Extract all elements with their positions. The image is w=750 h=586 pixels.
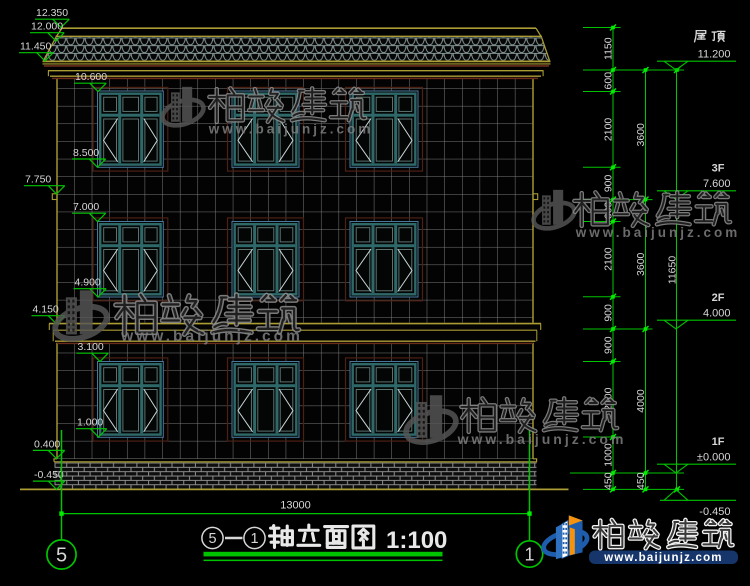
svg-text:-0.450: -0.450 [34,469,64,481]
svg-text:2F: 2F [712,292,725,304]
svg-text:1150: 1150 [603,37,615,60]
svg-text:1.000: 1.000 [77,417,103,429]
svg-text:900: 900 [603,336,615,354]
svg-text:1: 1 [250,531,258,547]
svg-text:450: 450 [635,472,647,490]
svg-text:12.350: 12.350 [36,7,68,19]
svg-text:3F: 3F [712,163,725,175]
svg-text:1F: 1F [712,436,725,448]
svg-text:11.200: 11.200 [698,49,731,61]
svg-text:±0.000: ±0.000 [697,452,731,464]
svg-text:0.400: 0.400 [34,438,60,450]
svg-text:8.500: 8.500 [73,147,99,159]
svg-text:5: 5 [56,545,67,567]
svg-text:1: 1 [524,545,534,565]
svg-text:13000: 13000 [280,500,311,512]
svg-text:www.baijunjz.com: www.baijunjz.com [120,328,303,345]
svg-text:2100: 2100 [603,247,615,271]
svg-text:4.000: 4.000 [703,308,731,320]
svg-text:www.baijunjz.com: www.baijunjz.com [208,122,374,137]
svg-text:11.450: 11.450 [20,41,51,53]
svg-text:7.600: 7.600 [703,178,731,190]
svg-text:4.150: 4.150 [33,304,59,316]
svg-text:3600: 3600 [635,123,647,147]
svg-text:900: 900 [603,304,615,322]
svg-text:10.600: 10.600 [75,71,107,83]
svg-text:-0.450: -0.450 [699,506,730,518]
svg-text:12.000: 12.000 [31,21,63,33]
svg-text:1:100: 1:100 [386,527,447,554]
svg-text:4.900: 4.900 [75,277,101,289]
svg-text:4000: 4000 [635,389,647,413]
svg-text:3600: 3600 [635,252,647,276]
svg-text:7.750: 7.750 [25,174,51,186]
svg-text:3.100: 3.100 [78,341,104,353]
svg-text:11650: 11650 [667,256,679,285]
svg-text:www.baijunjz.com: www.baijunjz.com [457,431,627,447]
svg-text:www.baijunjz.com: www.baijunjz.com [575,225,741,240]
svg-text:2100: 2100 [603,118,615,142]
svg-text:www.baijunjz.com: www.baijunjz.com [603,552,722,564]
svg-text:900: 900 [603,174,615,192]
svg-text:7.000: 7.000 [73,201,99,213]
svg-text:600: 600 [603,72,615,90]
svg-text:450: 450 [603,472,615,490]
svg-text:5: 5 [208,531,216,547]
